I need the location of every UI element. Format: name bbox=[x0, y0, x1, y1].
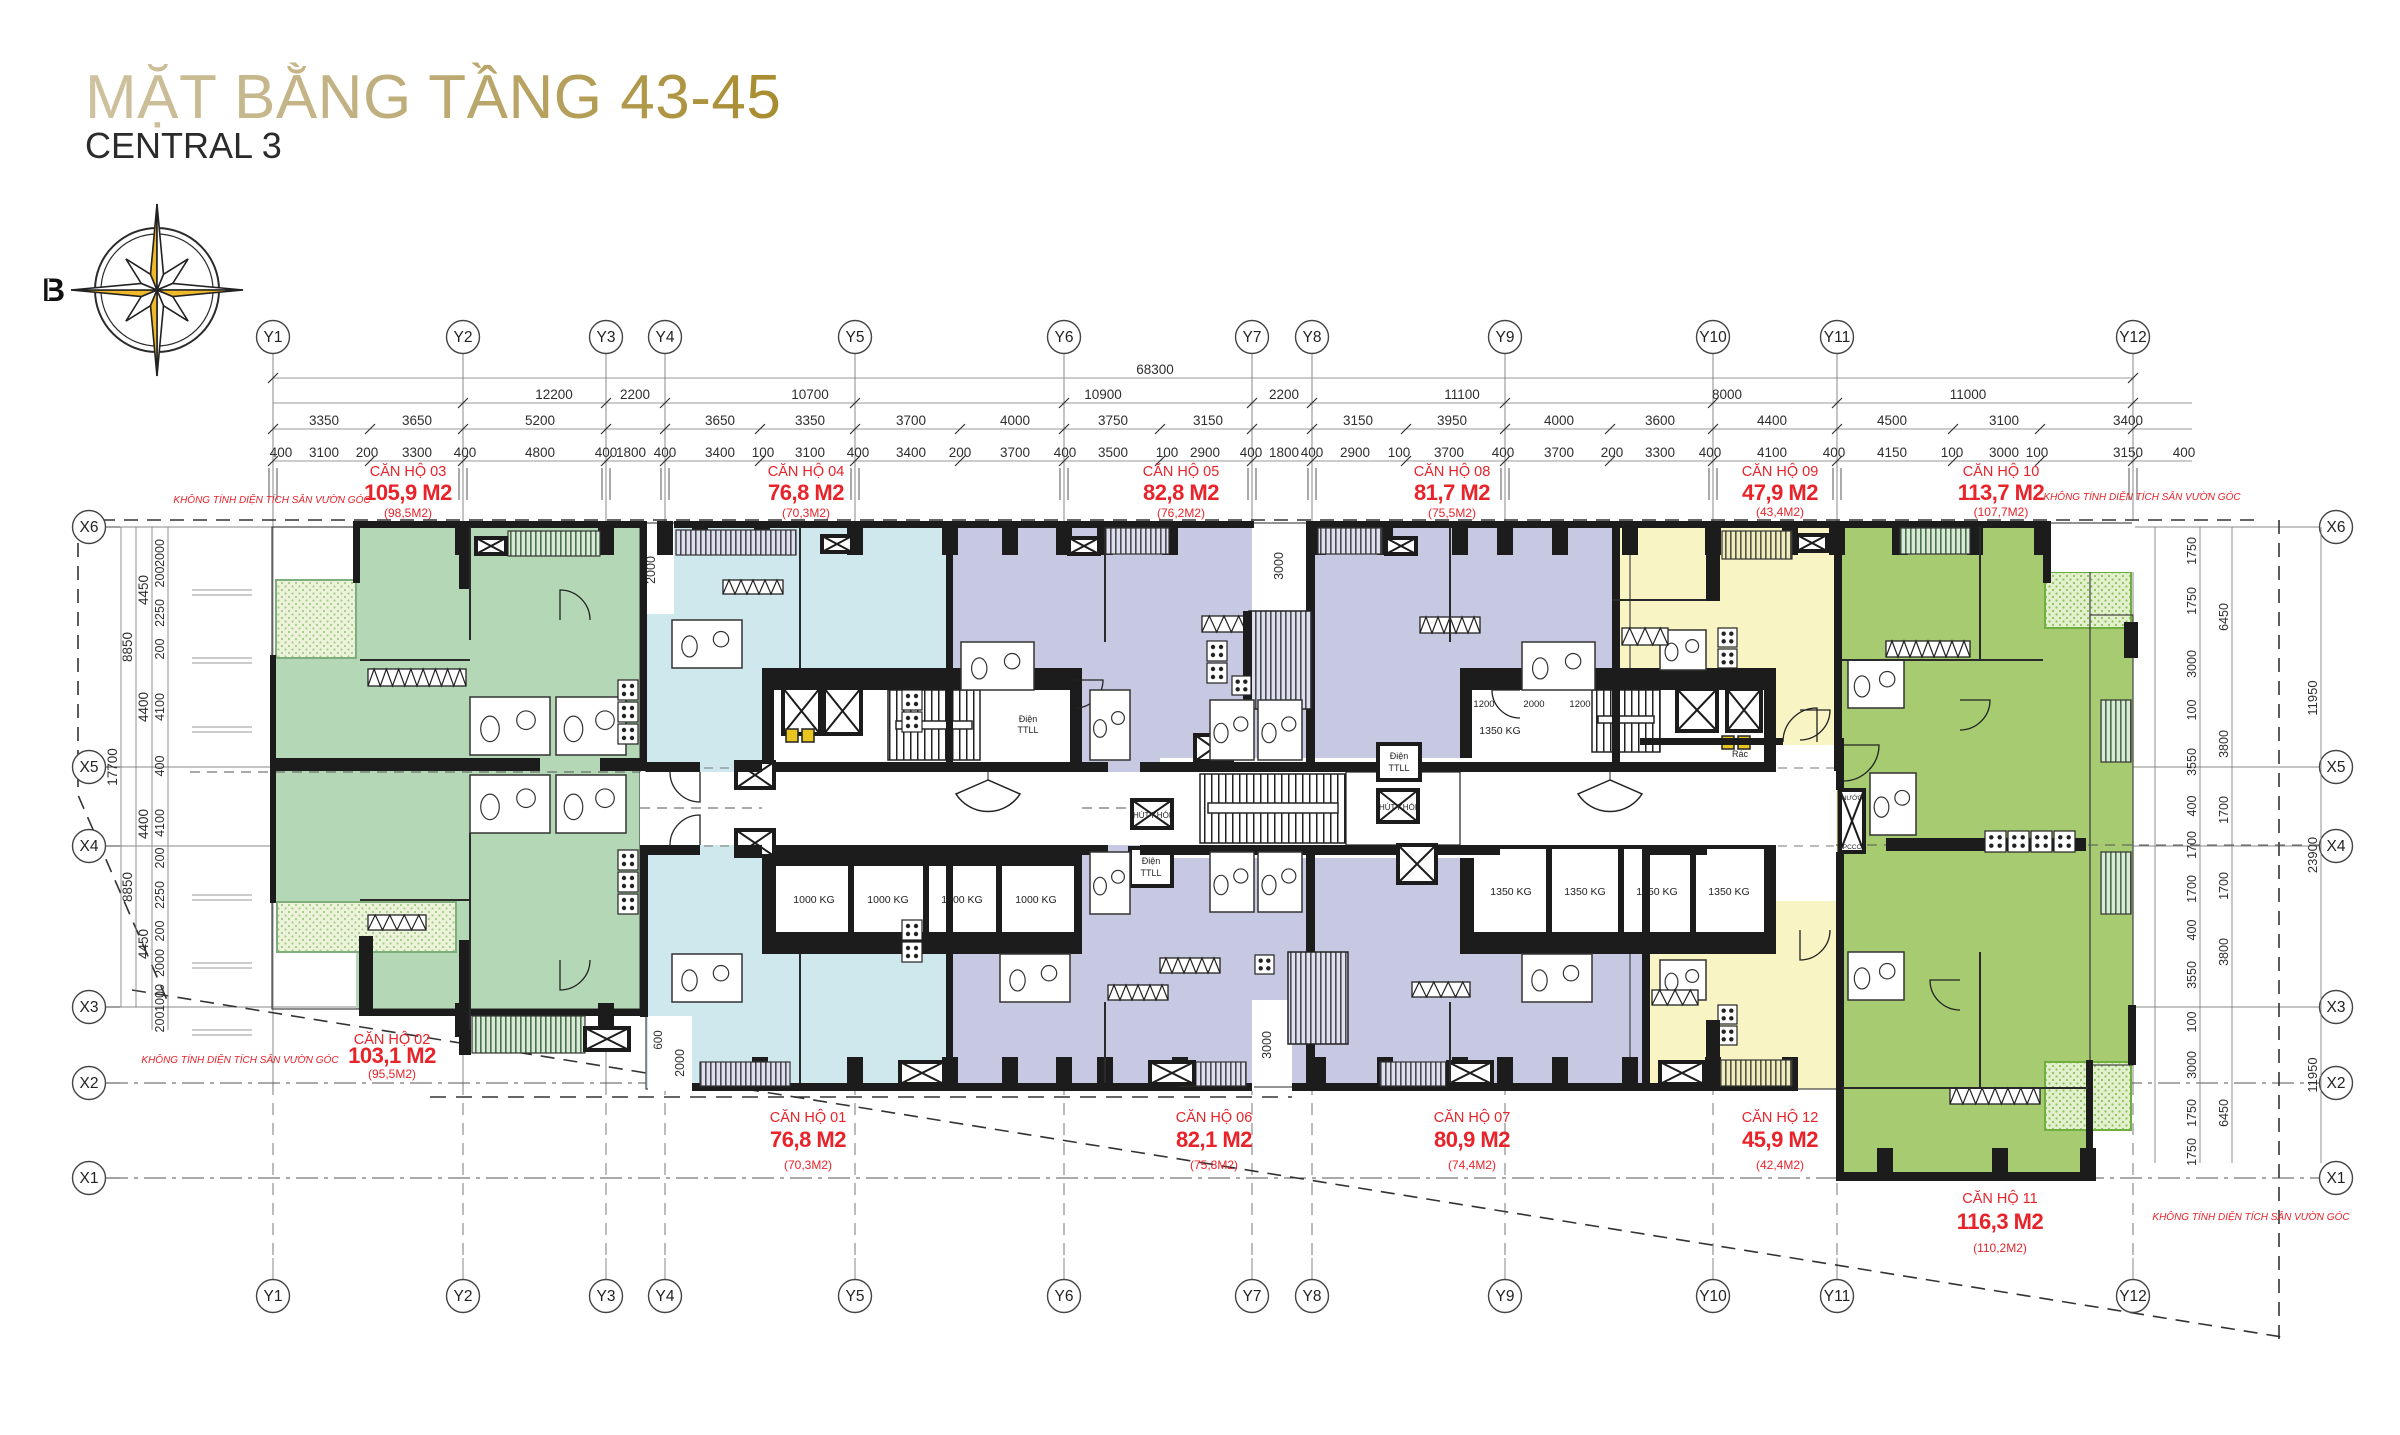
svg-text:Y6: Y6 bbox=[1055, 329, 1074, 346]
svg-text:3300: 3300 bbox=[1645, 445, 1675, 460]
svg-text:3650: 3650 bbox=[705, 413, 735, 428]
svg-text:Y1: Y1 bbox=[264, 329, 283, 346]
svg-text:B: B bbox=[42, 272, 65, 308]
svg-text:10900: 10900 bbox=[1084, 387, 1122, 402]
svg-text:4000: 4000 bbox=[1544, 413, 1574, 428]
svg-text:CĂN HỘ 10: CĂN HỘ 10 bbox=[1963, 463, 2040, 480]
svg-text:1200: 1200 bbox=[1569, 699, 1590, 710]
svg-text:CĂN HỘ 05: CĂN HỘ 05 bbox=[1143, 463, 1220, 480]
svg-text:76,8 M2: 76,8 M2 bbox=[770, 1127, 846, 1152]
svg-text:3700: 3700 bbox=[896, 413, 926, 428]
svg-text:200: 200 bbox=[356, 445, 379, 460]
svg-text:CENTRAL 3: CENTRAL 3 bbox=[85, 125, 282, 166]
svg-text:X5: X5 bbox=[80, 759, 99, 776]
svg-text:6450: 6450 bbox=[2217, 603, 2231, 631]
svg-text:X6: X6 bbox=[80, 519, 99, 536]
svg-text:1200: 1200 bbox=[1473, 699, 1494, 710]
svg-text:4400: 4400 bbox=[1757, 413, 1787, 428]
svg-text:400: 400 bbox=[654, 445, 677, 460]
svg-text:3400: 3400 bbox=[896, 445, 926, 460]
svg-text:CĂN HỘ 11: CĂN HỘ 11 bbox=[1962, 1190, 2037, 1207]
svg-text:3000: 3000 bbox=[1260, 1031, 1274, 1059]
svg-text:400: 400 bbox=[454, 445, 477, 460]
svg-text:3150: 3150 bbox=[1343, 413, 1373, 428]
svg-text:3800: 3800 bbox=[2217, 938, 2231, 966]
svg-text:3100: 3100 bbox=[309, 445, 339, 460]
svg-text:11950: 11950 bbox=[2305, 680, 2320, 715]
svg-text:10700: 10700 bbox=[791, 387, 829, 402]
svg-text:400: 400 bbox=[1492, 445, 1515, 460]
svg-text:4800: 4800 bbox=[525, 445, 555, 460]
svg-text:CĂN HỘ 01: CĂN HỘ 01 bbox=[770, 1109, 847, 1126]
svg-text:X6: X6 bbox=[2327, 519, 2346, 536]
svg-text:100: 100 bbox=[1388, 445, 1411, 460]
svg-text:(107,7M2): (107,7M2) bbox=[1974, 505, 2029, 519]
svg-text:2000: 2000 bbox=[1523, 699, 1544, 710]
svg-text:4450: 4450 bbox=[136, 575, 151, 605]
svg-text:X1: X1 bbox=[80, 1170, 99, 1187]
svg-text:17700: 17700 bbox=[105, 748, 120, 786]
svg-text:CĂN HỘ 03: CĂN HỘ 03 bbox=[370, 463, 447, 480]
svg-text:2250: 2250 bbox=[153, 881, 167, 909]
svg-text:(74,4M2): (74,4M2) bbox=[1448, 1158, 1496, 1172]
svg-text:Y5: Y5 bbox=[846, 329, 865, 346]
svg-text:TTLL: TTLL bbox=[1017, 725, 1038, 735]
svg-text:Điện: Điện bbox=[1142, 856, 1161, 866]
svg-text:12200: 12200 bbox=[535, 387, 573, 402]
svg-text:100: 100 bbox=[2185, 700, 2199, 721]
svg-text:Y7: Y7 bbox=[1243, 1288, 1262, 1305]
svg-text:11000: 11000 bbox=[1950, 387, 1987, 402]
svg-text:Y10: Y10 bbox=[1699, 1288, 1727, 1305]
svg-text:200: 200 bbox=[1601, 445, 1624, 460]
svg-text:400: 400 bbox=[1823, 445, 1846, 460]
svg-text:3350: 3350 bbox=[309, 413, 339, 428]
svg-text:200: 200 bbox=[153, 848, 167, 869]
svg-text:200: 200 bbox=[153, 1012, 167, 1033]
svg-text:Y4: Y4 bbox=[656, 329, 675, 346]
svg-text:Y7: Y7 bbox=[1243, 329, 1262, 346]
svg-text:400: 400 bbox=[2185, 796, 2199, 817]
svg-text:3100: 3100 bbox=[795, 445, 825, 460]
svg-text:3000: 3000 bbox=[2185, 1051, 2199, 1079]
svg-text:2000: 2000 bbox=[153, 949, 167, 977]
svg-text:Rác: Rác bbox=[1732, 749, 1749, 759]
svg-text:1800: 1800 bbox=[1269, 445, 1299, 460]
svg-text:1350 KG: 1350 KG bbox=[1479, 725, 1520, 737]
svg-text:Y12: Y12 bbox=[2119, 1288, 2147, 1305]
svg-text:1000 KG: 1000 KG bbox=[1015, 894, 1056, 906]
svg-text:68300: 68300 bbox=[1136, 362, 1174, 377]
svg-text:3350: 3350 bbox=[795, 413, 825, 428]
svg-text:X1: X1 bbox=[2327, 1170, 2346, 1187]
svg-text:Y1: Y1 bbox=[264, 1288, 283, 1305]
svg-text:3700: 3700 bbox=[1000, 445, 1030, 460]
svg-text:200: 200 bbox=[153, 567, 167, 588]
svg-text:100: 100 bbox=[1941, 445, 1964, 460]
svg-text:100: 100 bbox=[2026, 445, 2049, 460]
svg-text:82,8 M2: 82,8 M2 bbox=[1143, 480, 1219, 505]
svg-text:8850: 8850 bbox=[120, 632, 135, 662]
svg-text:600: 600 bbox=[653, 1030, 665, 1049]
svg-text:MẶT BẰNG TẦNG 43-45: MẶT BẰNG TẦNG 43-45 bbox=[85, 63, 781, 132]
svg-text:3500: 3500 bbox=[1098, 445, 1128, 460]
svg-text:3950: 3950 bbox=[1437, 413, 1467, 428]
svg-text:Y8: Y8 bbox=[1303, 1288, 1322, 1305]
svg-text:100: 100 bbox=[2185, 1012, 2199, 1033]
svg-text:45,9 M2: 45,9 M2 bbox=[1742, 1127, 1818, 1152]
svg-text:Y6: Y6 bbox=[1055, 1288, 1074, 1305]
svg-text:400: 400 bbox=[270, 445, 293, 460]
svg-text:X2: X2 bbox=[80, 1075, 99, 1092]
svg-text:81,7 M2: 81,7 M2 bbox=[1414, 480, 1490, 505]
svg-text:1350 KG: 1350 KG bbox=[1490, 886, 1531, 898]
svg-text:3600: 3600 bbox=[1645, 413, 1675, 428]
svg-text:8850: 8850 bbox=[120, 872, 135, 902]
svg-text:1800: 1800 bbox=[616, 445, 646, 460]
svg-text:KHÔNG TÍNH DIỆN TÍCH SÂN VƯỜN: KHÔNG TÍNH DIỆN TÍCH SÂN VƯỜN GÓC bbox=[173, 493, 371, 506]
svg-text:3400: 3400 bbox=[2113, 413, 2143, 428]
svg-text:Y9: Y9 bbox=[1496, 329, 1515, 346]
svg-text:400: 400 bbox=[1240, 445, 1263, 460]
svg-text:(75,5M2): (75,5M2) bbox=[1428, 506, 1476, 520]
svg-text:1700: 1700 bbox=[2217, 796, 2231, 824]
svg-text:2200: 2200 bbox=[620, 387, 650, 402]
svg-text:400: 400 bbox=[2185, 920, 2199, 941]
svg-text:400: 400 bbox=[1301, 445, 1324, 460]
svg-text:Điện: Điện bbox=[1019, 714, 1038, 724]
svg-text:400: 400 bbox=[1699, 445, 1722, 460]
svg-text:Điện: Điện bbox=[1390, 751, 1409, 761]
svg-text:1000 KG: 1000 KG bbox=[793, 894, 834, 906]
svg-text:6450: 6450 bbox=[2217, 1099, 2231, 1127]
svg-text:1000: 1000 bbox=[153, 984, 167, 1012]
svg-text:3100: 3100 bbox=[1989, 413, 2019, 428]
svg-text:Y8: Y8 bbox=[1303, 329, 1322, 346]
svg-text:KHÔNG TÍNH DIỆN TÍCH SÂN VƯỜN: KHÔNG TÍNH DIỆN TÍCH SÂN VƯỜN GÓC bbox=[2043, 490, 2241, 503]
svg-text:KHÔNG TÍNH DIỆN TÍCH SÂN VƯỜN: KHÔNG TÍNH DIỆN TÍCH SÂN VƯỜN GÓC bbox=[141, 1053, 339, 1066]
svg-text:400: 400 bbox=[2173, 445, 2196, 460]
svg-text:(75,8M2): (75,8M2) bbox=[1190, 1158, 1238, 1172]
svg-text:3650: 3650 bbox=[402, 413, 432, 428]
svg-text:(43,4M2): (43,4M2) bbox=[1756, 505, 1804, 519]
svg-text:3000: 3000 bbox=[1989, 445, 2019, 460]
svg-text:103,1 M2: 103,1 M2 bbox=[348, 1043, 436, 1068]
svg-text:CĂN HỘ 12: CĂN HỘ 12 bbox=[1742, 1109, 1819, 1126]
svg-text:(95,5M2): (95,5M2) bbox=[368, 1067, 416, 1081]
svg-text:2900: 2900 bbox=[1190, 445, 1220, 460]
svg-text:Y9: Y9 bbox=[1496, 1288, 1515, 1305]
svg-text:1750: 1750 bbox=[2185, 537, 2199, 565]
svg-text:CĂN HỘ 06: CĂN HỘ 06 bbox=[1176, 1109, 1253, 1126]
svg-text:3150: 3150 bbox=[1193, 413, 1223, 428]
svg-text:3550: 3550 bbox=[2185, 961, 2199, 989]
svg-text:3000: 3000 bbox=[1272, 552, 1286, 580]
svg-text:TTLL: TTLL bbox=[1388, 763, 1409, 773]
svg-text:4000: 4000 bbox=[1000, 413, 1030, 428]
svg-text:Y12: Y12 bbox=[2119, 329, 2147, 346]
svg-text:11100: 11100 bbox=[1444, 387, 1480, 402]
svg-text:400: 400 bbox=[595, 445, 618, 460]
svg-text:CĂN HỘ 07: CĂN HỘ 07 bbox=[1434, 1109, 1511, 1126]
svg-text:3400: 3400 bbox=[705, 445, 735, 460]
svg-text:4100: 4100 bbox=[153, 809, 167, 837]
svg-text:105,9 M2: 105,9 M2 bbox=[364, 480, 452, 505]
svg-text:113,7 M2: 113,7 M2 bbox=[1958, 480, 2045, 505]
svg-text:Y11: Y11 bbox=[1824, 1288, 1850, 1305]
svg-text:CĂN HỘ 09: CĂN HỘ 09 bbox=[1742, 463, 1819, 480]
svg-text:3700: 3700 bbox=[1434, 445, 1464, 460]
svg-text:TTLL: TTLL bbox=[1140, 868, 1161, 878]
svg-text:200: 200 bbox=[153, 921, 167, 942]
svg-text:3800: 3800 bbox=[2217, 730, 2231, 758]
svg-text:100: 100 bbox=[1156, 445, 1179, 460]
svg-text:Y2: Y2 bbox=[454, 329, 473, 346]
svg-text:200: 200 bbox=[949, 445, 972, 460]
svg-text:2000: 2000 bbox=[673, 1049, 687, 1077]
svg-text:X4: X4 bbox=[80, 838, 99, 855]
svg-text:Y11: Y11 bbox=[1824, 329, 1850, 346]
svg-text:(70,3M2): (70,3M2) bbox=[784, 1158, 832, 1172]
svg-text:400: 400 bbox=[153, 756, 167, 777]
svg-text:3000: 3000 bbox=[2185, 650, 2199, 678]
svg-text:200: 200 bbox=[153, 639, 167, 660]
svg-text:(110,2M2): (110,2M2) bbox=[1973, 1241, 2027, 1255]
svg-text:Y2: Y2 bbox=[454, 1288, 473, 1305]
svg-text:PCCC: PCCC bbox=[1843, 844, 1862, 851]
svg-text:X2: X2 bbox=[2327, 1075, 2346, 1092]
svg-text:2900: 2900 bbox=[1340, 445, 1370, 460]
svg-text:Y4: Y4 bbox=[656, 1288, 675, 1305]
svg-text:4400: 4400 bbox=[136, 809, 151, 839]
svg-text:116,3 M2: 116,3 M2 bbox=[1957, 1209, 2044, 1234]
svg-text:(76,2M2): (76,2M2) bbox=[1157, 506, 1205, 520]
svg-text:3300: 3300 bbox=[402, 445, 432, 460]
svg-text:1350 KG: 1350 KG bbox=[1708, 886, 1749, 898]
svg-text:HÚT KHÓI: HÚT KHÓI bbox=[1379, 803, 1417, 812]
svg-text:HÚT KHÓI: HÚT KHÓI bbox=[1133, 811, 1171, 820]
svg-text:Y10: Y10 bbox=[1699, 329, 1727, 346]
svg-text:1700: 1700 bbox=[2185, 875, 2199, 903]
svg-text:3550: 3550 bbox=[2185, 748, 2199, 776]
svg-text:23900: 23900 bbox=[2305, 837, 2320, 873]
svg-text:2250: 2250 bbox=[153, 599, 167, 627]
svg-text:(70,3M2): (70,3M2) bbox=[782, 506, 830, 520]
svg-text:X3: X3 bbox=[2327, 999, 2346, 1016]
svg-text:2000: 2000 bbox=[153, 539, 167, 567]
svg-text:4500: 4500 bbox=[1877, 413, 1907, 428]
svg-text:4400: 4400 bbox=[136, 692, 151, 722]
svg-text:X3: X3 bbox=[80, 999, 99, 1016]
svg-text:11950: 11950 bbox=[2305, 1057, 2320, 1092]
svg-text:1000 KG: 1000 KG bbox=[867, 894, 908, 906]
svg-text:X4: X4 bbox=[2327, 838, 2346, 855]
svg-text:NƯỚC: NƯỚC bbox=[1842, 793, 1863, 802]
svg-text:82,1 M2: 82,1 M2 bbox=[1176, 1127, 1252, 1152]
svg-text:(98,5M2): (98,5M2) bbox=[384, 506, 432, 520]
svg-text:(42,4M2): (42,4M2) bbox=[1756, 1158, 1804, 1172]
svg-text:Y3: Y3 bbox=[597, 1288, 616, 1305]
svg-text:X5: X5 bbox=[2327, 759, 2346, 776]
svg-text:76,8 M2: 76,8 M2 bbox=[768, 480, 844, 505]
svg-text:5200: 5200 bbox=[525, 413, 555, 428]
svg-text:CĂN HỘ 08: CĂN HỘ 08 bbox=[1414, 463, 1491, 480]
svg-text:1750: 1750 bbox=[2185, 1099, 2199, 1127]
svg-text:1750: 1750 bbox=[2185, 587, 2199, 615]
svg-text:4100: 4100 bbox=[1757, 445, 1787, 460]
svg-text:47,9 M2: 47,9 M2 bbox=[1742, 480, 1818, 505]
svg-text:KHÔNG TÍNH DIỆN TÍCH SÂN VƯỜN: KHÔNG TÍNH DIỆN TÍCH SÂN VƯỜN GÓC bbox=[2152, 1210, 2350, 1223]
svg-text:80,9 M2: 80,9 M2 bbox=[1434, 1127, 1510, 1152]
svg-text:4100: 4100 bbox=[153, 693, 167, 721]
svg-text:Y3: Y3 bbox=[597, 329, 616, 346]
svg-text:1750: 1750 bbox=[2185, 1138, 2199, 1166]
svg-text:400: 400 bbox=[1054, 445, 1077, 460]
svg-text:1350 KG: 1350 KG bbox=[1564, 886, 1605, 898]
svg-text:3750: 3750 bbox=[1098, 413, 1128, 428]
svg-text:4450: 4450 bbox=[136, 929, 151, 959]
svg-text:CĂN HỘ 04: CĂN HỘ 04 bbox=[768, 463, 845, 480]
svg-text:4150: 4150 bbox=[1877, 445, 1907, 460]
svg-text:3700: 3700 bbox=[1544, 445, 1574, 460]
svg-text:1700: 1700 bbox=[2217, 872, 2231, 900]
svg-text:3150: 3150 bbox=[2113, 445, 2143, 460]
svg-text:Y5: Y5 bbox=[846, 1288, 865, 1305]
svg-text:2200: 2200 bbox=[1269, 387, 1299, 402]
